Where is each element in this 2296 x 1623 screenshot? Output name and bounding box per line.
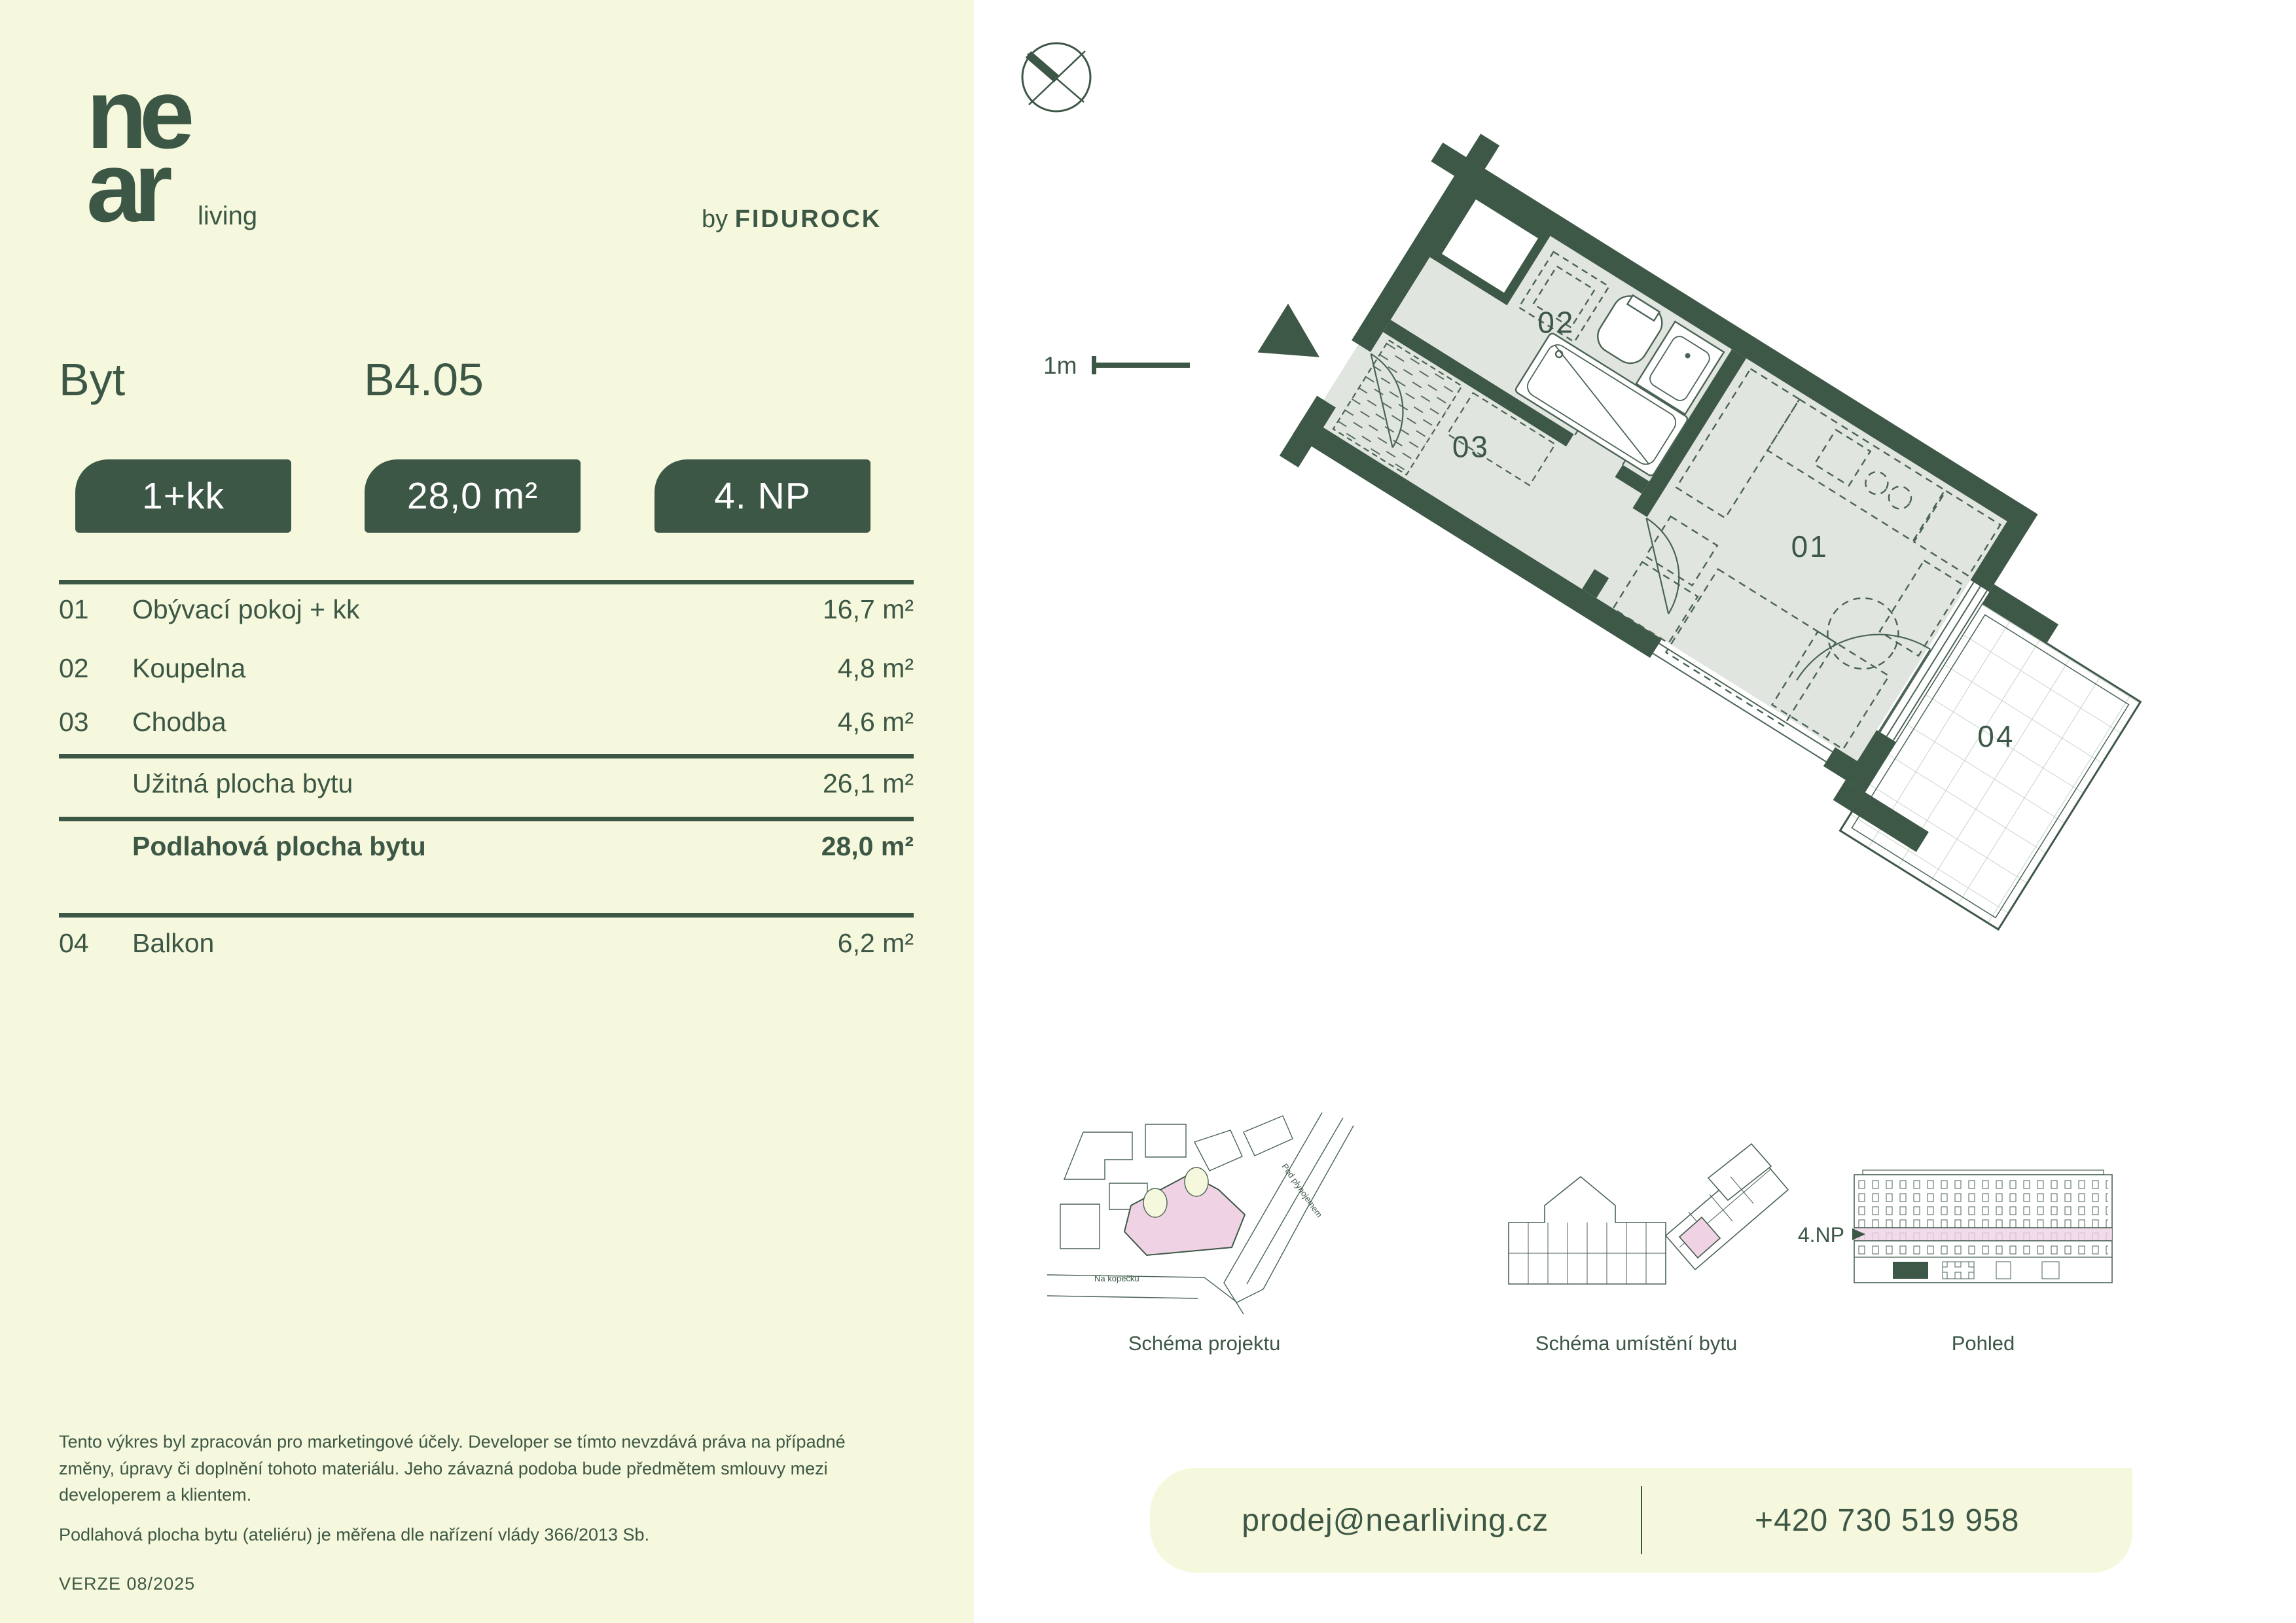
contact-bar: prodej@nearliving.cz +420 730 519 958	[1150, 1468, 2132, 1573]
scale-label: 1m	[1043, 352, 1077, 380]
contact-email[interactable]: prodej@nearliving.cz	[1150, 1503, 1641, 1539]
contact-phone[interactable]: +420 730 519 958	[1642, 1503, 2133, 1539]
street-label-2: Pod plynojemem	[1280, 1162, 1325, 1219]
elevation-schematic: 4.NP	[1798, 1170, 2112, 1283]
scale-bar	[1092, 356, 1190, 374]
unit-placement-schematic	[1509, 1144, 1788, 1284]
floor-marker-label: 4.NP	[1798, 1223, 1844, 1247]
room-label-03: 03	[1452, 429, 1490, 463]
plan-graphics: 01 02 03 04	[0, 0, 2296, 1623]
room-label-02: 02	[1537, 306, 1575, 340]
schematic-caption-placement: Schéma umístění bytu	[1505, 1332, 1767, 1355]
room-label-01: 01	[1791, 529, 1829, 563]
north-compass-icon	[1022, 43, 1090, 111]
schematic-caption-view: Pohled	[1852, 1332, 2114, 1355]
floor-plan: 01 02 03 04	[1206, 95, 2210, 929]
street-label-1: Na kopečku	[1094, 1274, 1139, 1283]
site-map-schematic: Na kopečku Pod plynojemem	[1047, 1113, 1354, 1314]
schematic-caption-project: Schéma projektu	[1073, 1332, 1335, 1355]
room-label-04: 04	[1977, 719, 2015, 753]
entrance-arrow-icon	[1257, 304, 1335, 382]
apartment-datasheet: ne ar living by FIDUROCK Byt B4.05 J 1+k…	[0, 0, 2296, 1623]
